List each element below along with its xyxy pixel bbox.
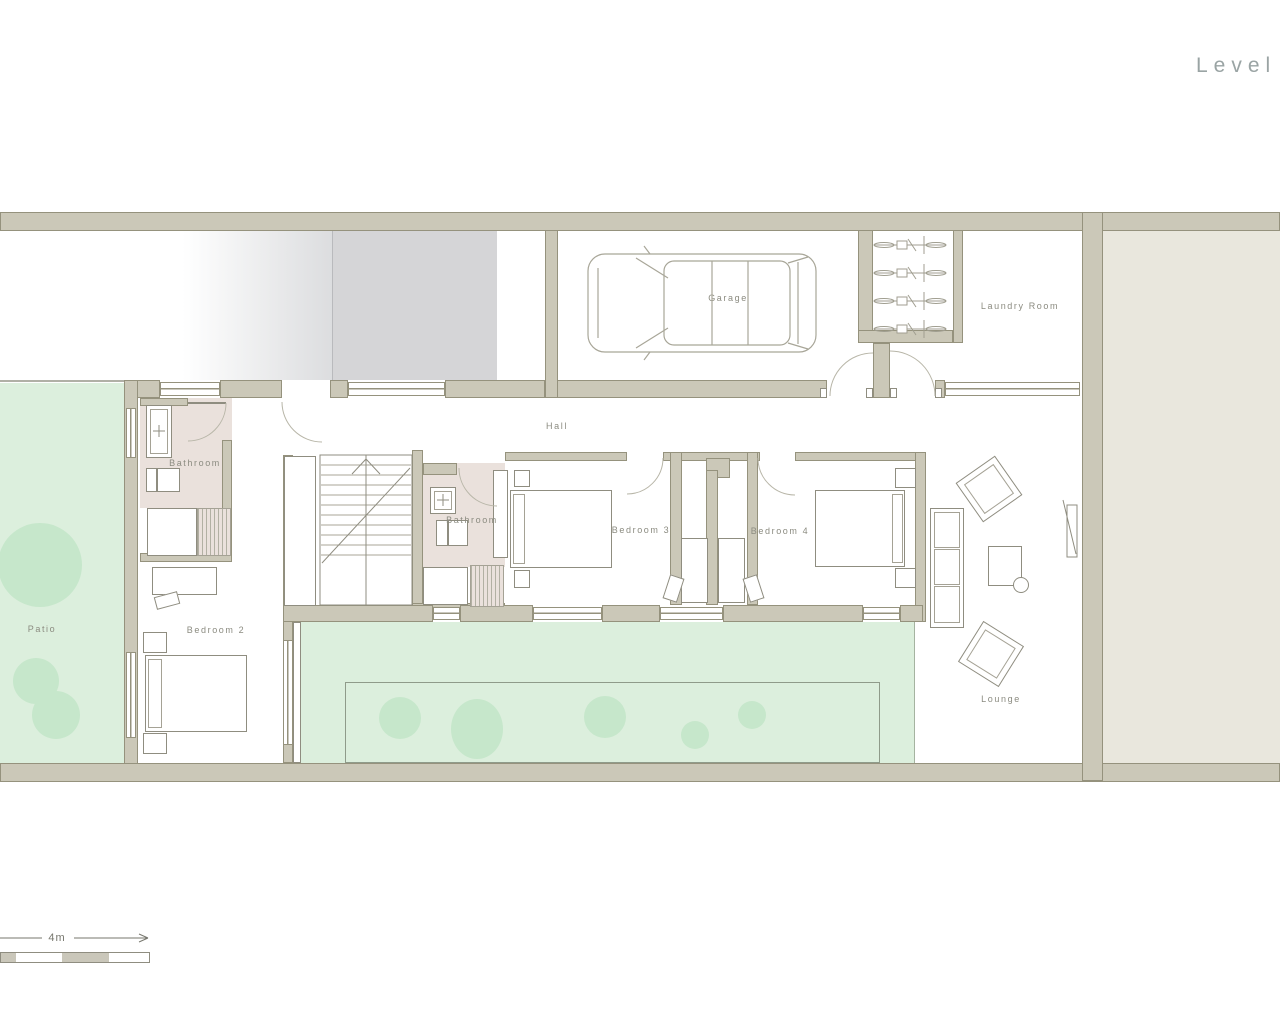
plan-linework <box>0 0 1280 1024</box>
car-top-view-icon <box>588 246 816 360</box>
tv <box>1063 500 1077 557</box>
staircase <box>320 455 412 605</box>
door-swing-arc <box>459 468 497 506</box>
dimension-line <box>0 934 148 942</box>
bicycle-icon <box>874 264 946 282</box>
door-swing-arc <box>830 353 873 396</box>
bicycle-icon <box>874 236 946 254</box>
door-swing-arc <box>282 402 322 442</box>
door-swing-arc <box>890 351 935 396</box>
bicycle-icon <box>874 320 946 338</box>
bicycle-icons <box>874 236 946 338</box>
door-swing-arc <box>627 458 663 494</box>
door-swing-arc <box>758 458 795 495</box>
door-swing-arcs <box>188 351 935 506</box>
door-swing-arc <box>188 403 226 441</box>
bicycle-icon <box>874 292 946 310</box>
floor-plan-page: { "title": "Level /", "scale_bar": { "la… <box>0 0 1280 1024</box>
